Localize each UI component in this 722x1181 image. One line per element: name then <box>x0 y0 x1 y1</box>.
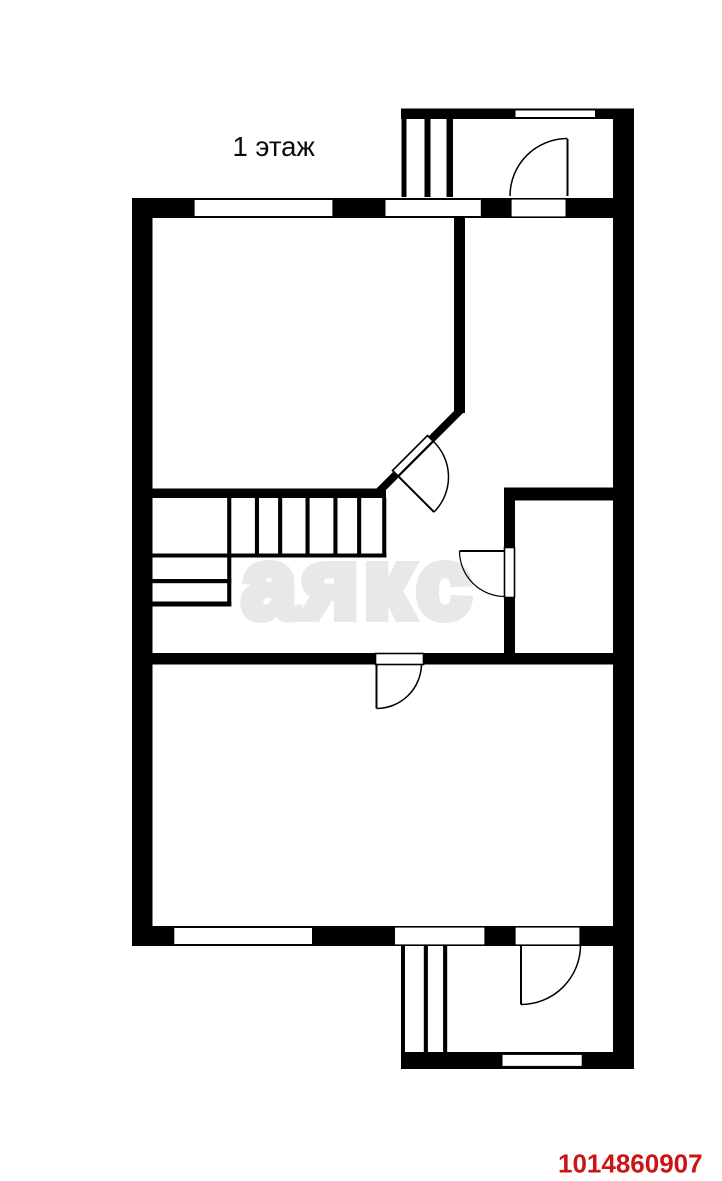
svg-text:1014860907: 1014860907 <box>558 1149 703 1179</box>
svg-text:1 этаж: 1 этаж <box>233 131 316 162</box>
